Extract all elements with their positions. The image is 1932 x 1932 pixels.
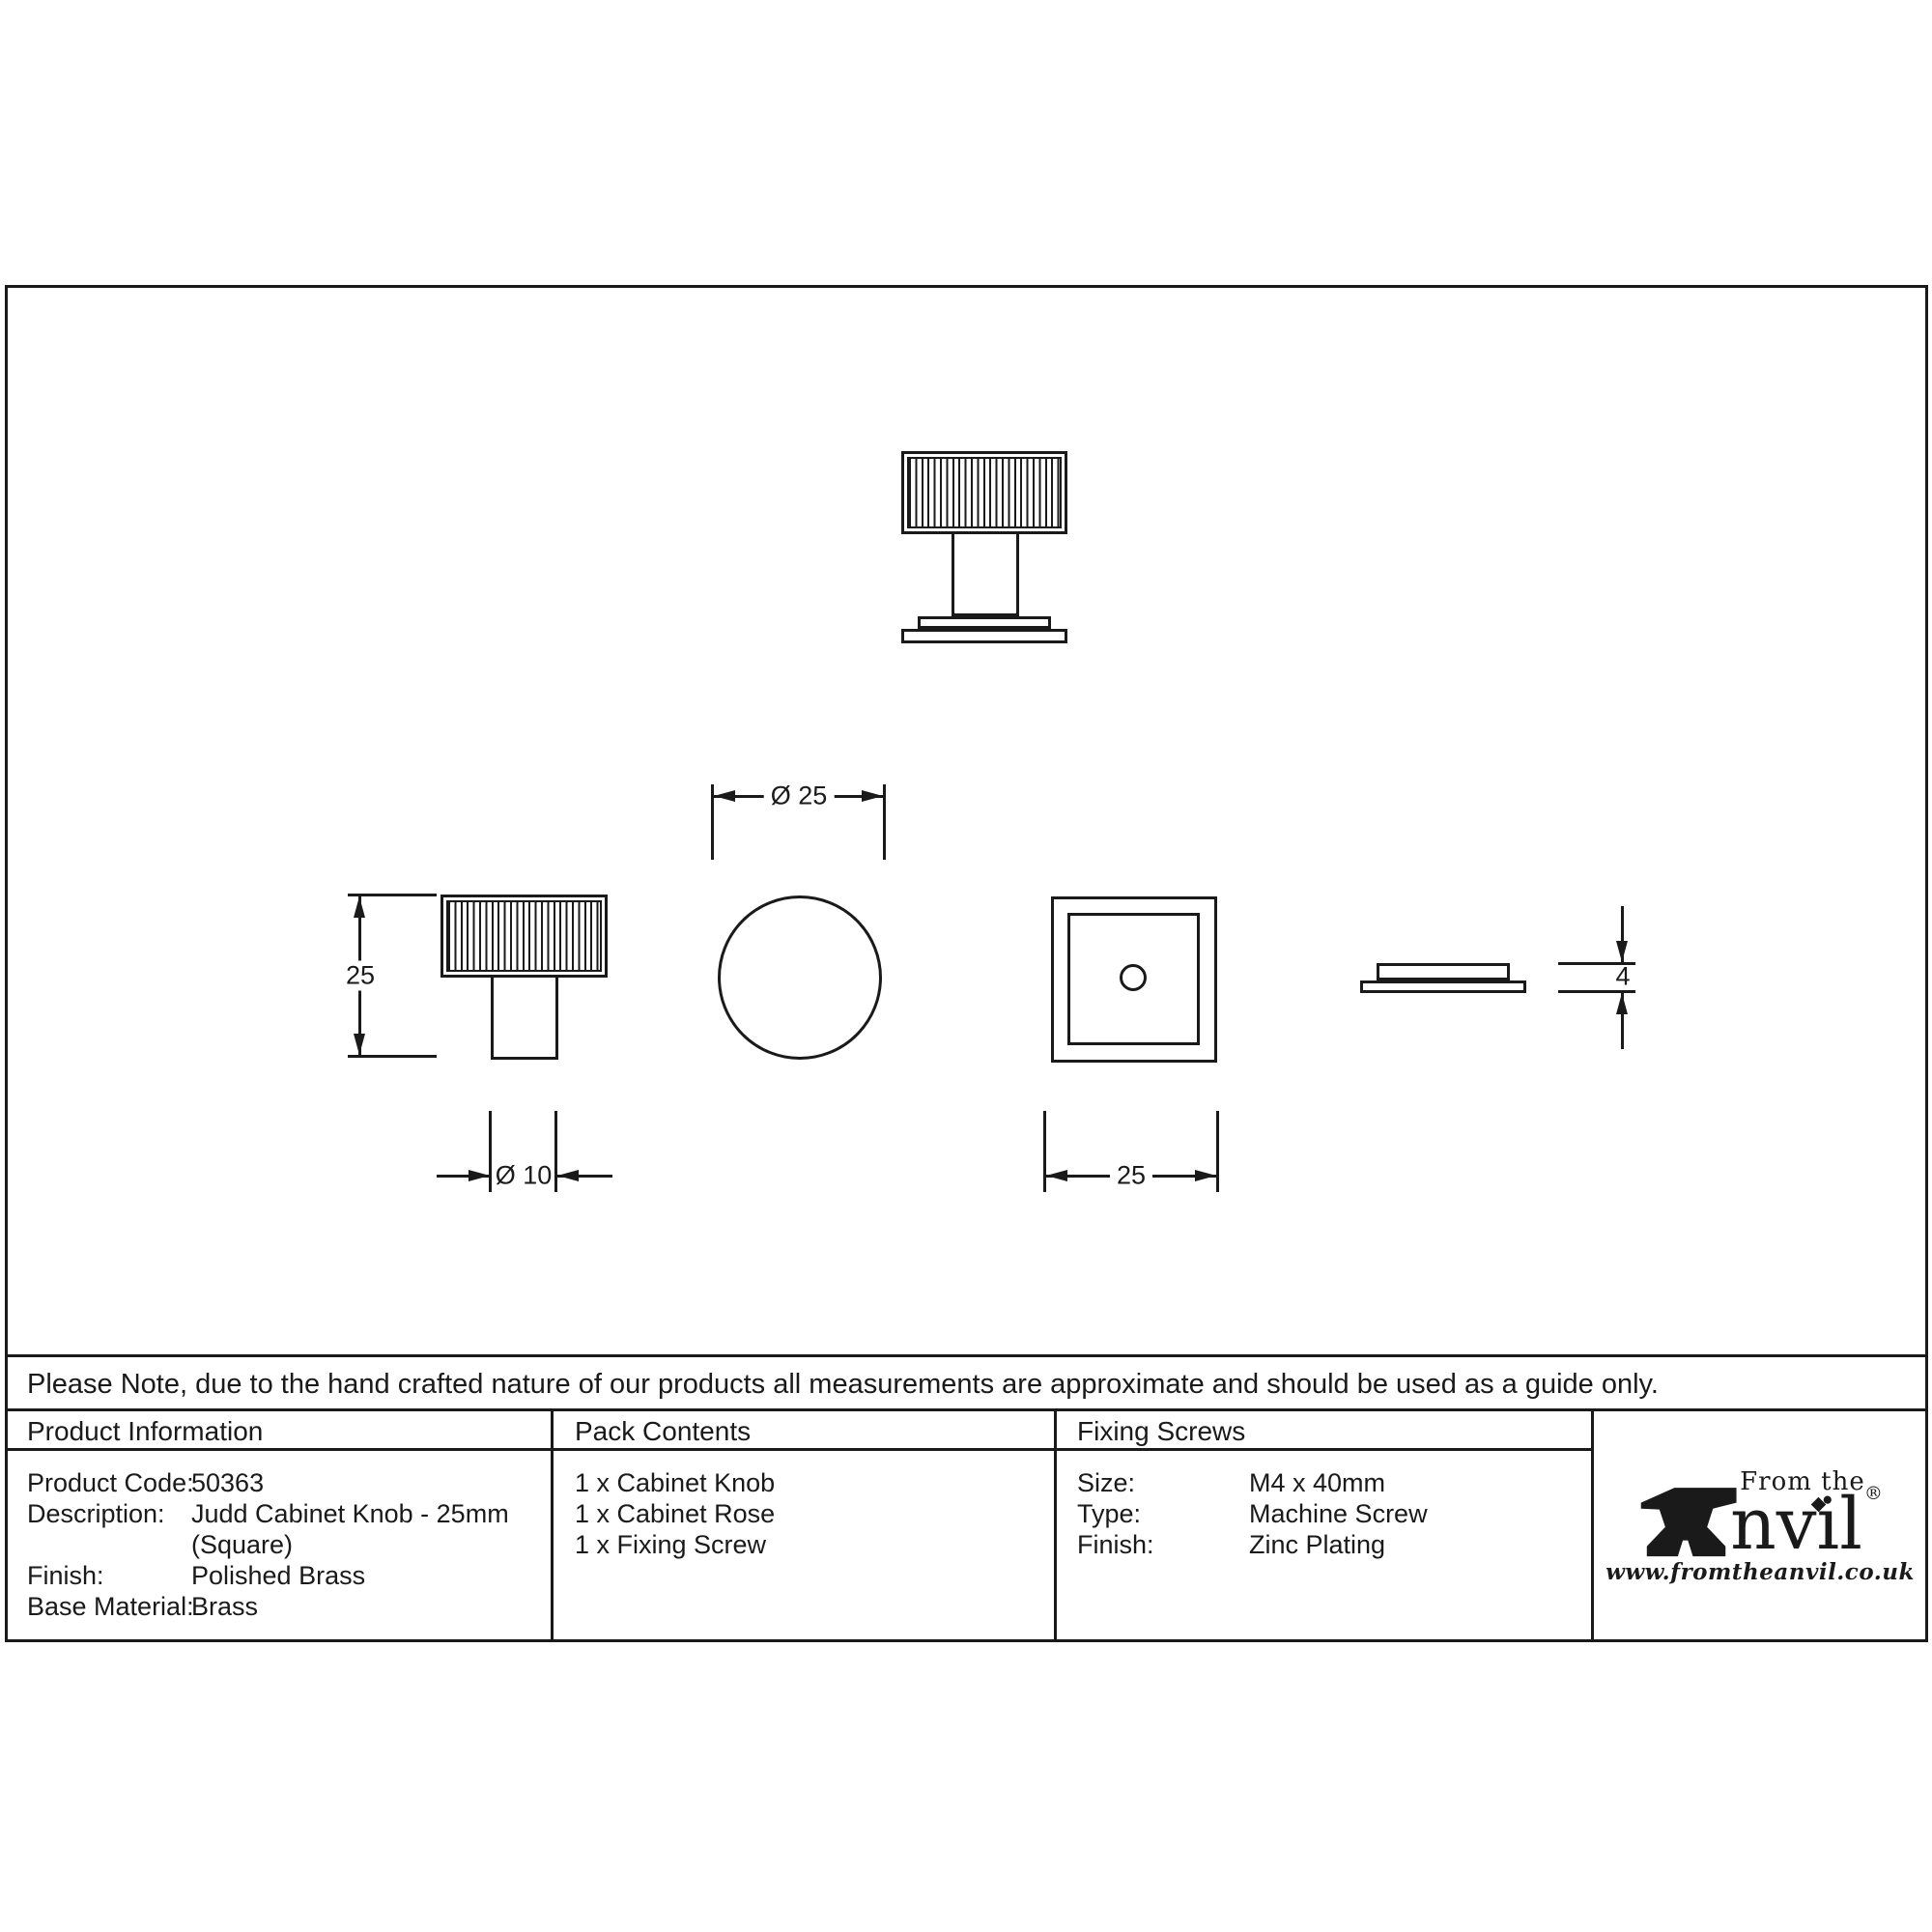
base-material-value: Brass xyxy=(191,1594,258,1620)
screw-type-value: Machine Screw xyxy=(1249,1501,1428,1527)
arrowhead-up xyxy=(354,896,365,918)
dimension-label-height: 25 xyxy=(339,961,382,991)
datasheet-page: 25 Ø 10 Ø 25 25 xyxy=(0,0,1932,1932)
extension-line xyxy=(1216,1111,1219,1192)
registered-trademark-icon: ® xyxy=(1864,1483,1883,1504)
fluting-pattern xyxy=(907,457,1062,528)
measurement-note: Please Note, due to the hand crafted nat… xyxy=(27,1371,1659,1399)
extension-line xyxy=(348,1055,437,1058)
product-code-value: 50363 xyxy=(191,1470,264,1496)
dimension-label-stem-diameter: Ø 10 xyxy=(489,1161,559,1191)
arrowhead-left xyxy=(557,1170,579,1181)
fluting-pattern xyxy=(446,900,602,972)
rose-upper-tier xyxy=(918,616,1051,629)
arrowhead-up xyxy=(1616,993,1628,1014)
screw-hole xyxy=(1120,964,1147,991)
dimension-label-rose-width: 25 xyxy=(1110,1161,1152,1191)
pack-item-screw: 1 x Fixing Screw xyxy=(575,1532,766,1558)
knob-stem xyxy=(952,534,1019,616)
table-divider-3 xyxy=(1591,1411,1594,1642)
screw-size-value: M4 x 40mm xyxy=(1249,1470,1385,1496)
arrowhead-down xyxy=(1616,941,1628,962)
arrowhead-left xyxy=(1046,1170,1067,1181)
table-divider-1 xyxy=(551,1411,554,1642)
table-divider-2 xyxy=(1054,1411,1057,1642)
pack-item-knob: 1 x Cabinet Knob xyxy=(575,1470,775,1496)
logo-anvil-word: nvil® xyxy=(1730,1491,1881,1558)
screw-finish-label: Finish: xyxy=(1077,1532,1154,1558)
description-value: Judd Cabinet Knob - 25mm xyxy=(191,1501,509,1527)
knob-head-fluted xyxy=(440,895,608,978)
arrowhead-right xyxy=(469,1170,490,1181)
arrowhead-right xyxy=(862,790,883,802)
arrowhead-right xyxy=(1195,1170,1216,1181)
description-value-line2: (Square) xyxy=(191,1532,293,1558)
screw-size-label: Size: xyxy=(1077,1470,1135,1496)
screw-finish-value: Zinc Plating xyxy=(1249,1532,1385,1558)
screw-type-label: Type: xyxy=(1077,1501,1141,1527)
column-header-fixing-screws: Fixing Screws xyxy=(1077,1418,1245,1445)
arrowhead-left xyxy=(714,790,735,802)
table-header-rule xyxy=(8,1448,1592,1451)
arrowhead-down xyxy=(354,1034,365,1055)
knob-circle-outline xyxy=(718,895,882,1060)
anvil-icon xyxy=(1639,1480,1740,1559)
pack-item-rose: 1 x Cabinet Rose xyxy=(575,1501,775,1527)
knob-head-fluted xyxy=(901,451,1067,534)
product-code-label: Product Code: xyxy=(27,1470,194,1496)
column-header-pack-contents: Pack Contents xyxy=(575,1418,751,1445)
table-top-rule xyxy=(5,1408,1928,1411)
finish-label: Finish: xyxy=(27,1563,104,1589)
drawing-frame xyxy=(5,285,1928,1354)
knob-stem xyxy=(491,978,558,1060)
extension-line xyxy=(883,784,886,860)
column-header-product-information: Product Information xyxy=(27,1418,263,1445)
rose-lower-tier xyxy=(901,629,1067,643)
dimension-label-knob-diameter: Ø 25 xyxy=(764,781,835,811)
dimension-label-rose-thickness: 4 xyxy=(1608,962,1636,992)
rose-upper-tier xyxy=(1377,963,1510,980)
base-material-label: Base Material: xyxy=(27,1594,194,1620)
finish-value: Polished Brass xyxy=(191,1563,365,1589)
brand-logo: From the nvil® www.fromtheanvil.co.uk xyxy=(1595,1413,1925,1639)
description-label: Description: xyxy=(27,1501,165,1527)
rose-lower-tier xyxy=(1360,980,1526,993)
